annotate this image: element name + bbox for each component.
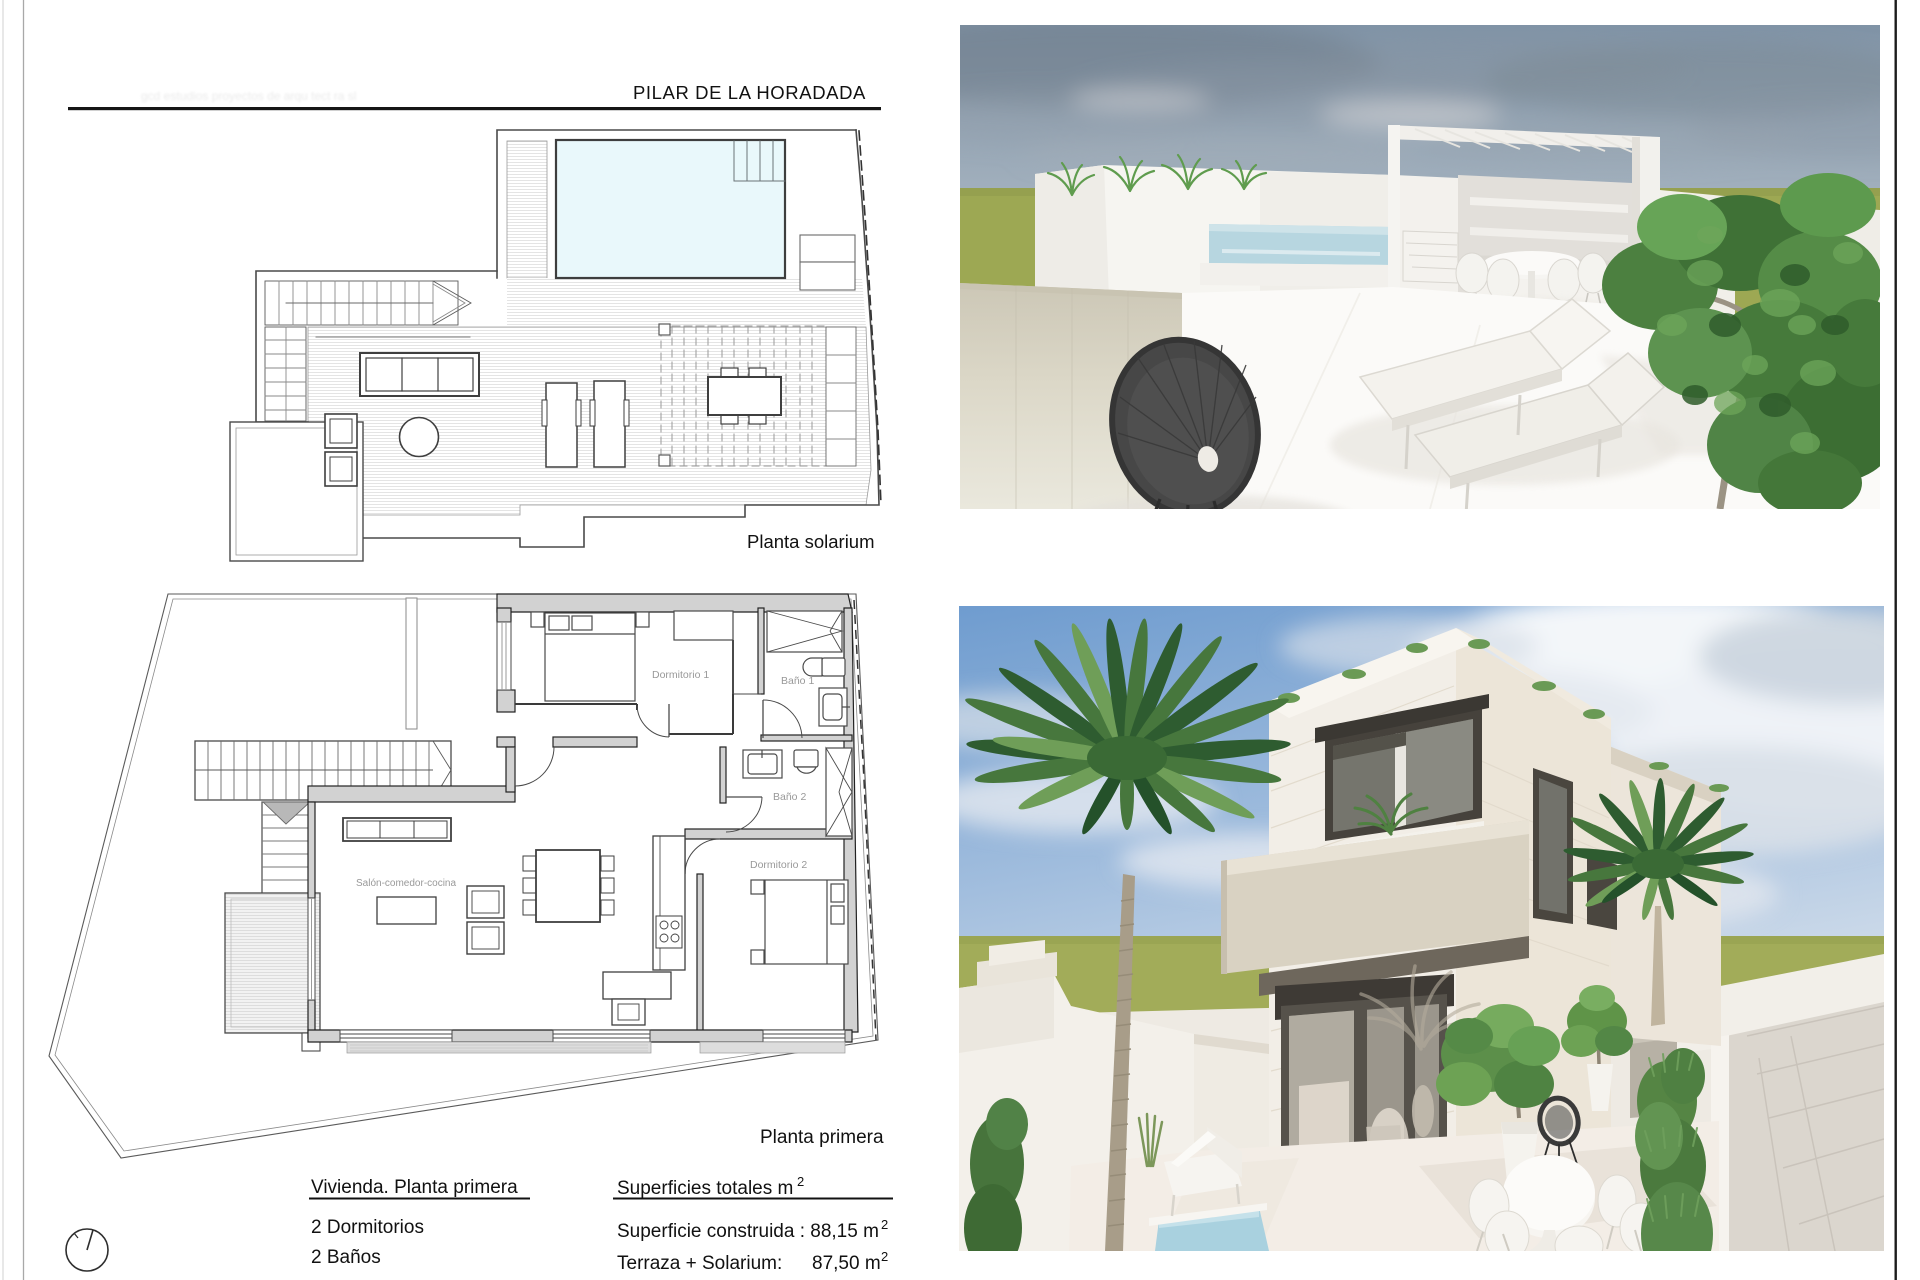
svg-text:Planta solarium: Planta solarium bbox=[747, 531, 875, 552]
svg-text:Terraza + Solarium:: Terraza + Solarium: bbox=[617, 1253, 782, 1274]
svg-text:2 Dormitorios: 2 Dormitorios bbox=[311, 1217, 424, 1238]
svg-text:Planta primera: Planta primera bbox=[760, 1127, 884, 1148]
svg-text:Baño 1: Baño 1 bbox=[781, 675, 814, 687]
svg-text:Vivienda. Planta primera: Vivienda. Planta primera bbox=[311, 1177, 518, 1198]
svg-text:87,50 m: 87,50 m bbox=[812, 1253, 881, 1274]
svg-text:PILAR DE LA HORADADA: PILAR DE LA HORADADA bbox=[633, 82, 866, 103]
svg-text:Superficie construida : 88,15: Superficie construida : 88,15 m bbox=[617, 1221, 879, 1242]
svg-text:Salón-comedor-cocina: Salón-comedor-cocina bbox=[356, 878, 456, 889]
svg-text:Superficies totales m: Superficies totales m bbox=[617, 1178, 793, 1199]
svg-text:2 Baños: 2 Baños bbox=[311, 1247, 381, 1268]
svg-text:Baño 2: Baño 2 bbox=[773, 791, 806, 803]
svg-text:2: 2 bbox=[797, 1174, 804, 1189]
svg-text:Dormitorio 2: Dormitorio 2 bbox=[750, 859, 807, 871]
svg-text:2: 2 bbox=[881, 1249, 888, 1264]
svg-text:Dormitorio 1: Dormitorio 1 bbox=[652, 669, 709, 681]
svg-text:2: 2 bbox=[881, 1217, 888, 1232]
svg-text:gcd estudios proyectos de a: gcd estudios proyectos de arqu tect ra s… bbox=[141, 89, 356, 103]
